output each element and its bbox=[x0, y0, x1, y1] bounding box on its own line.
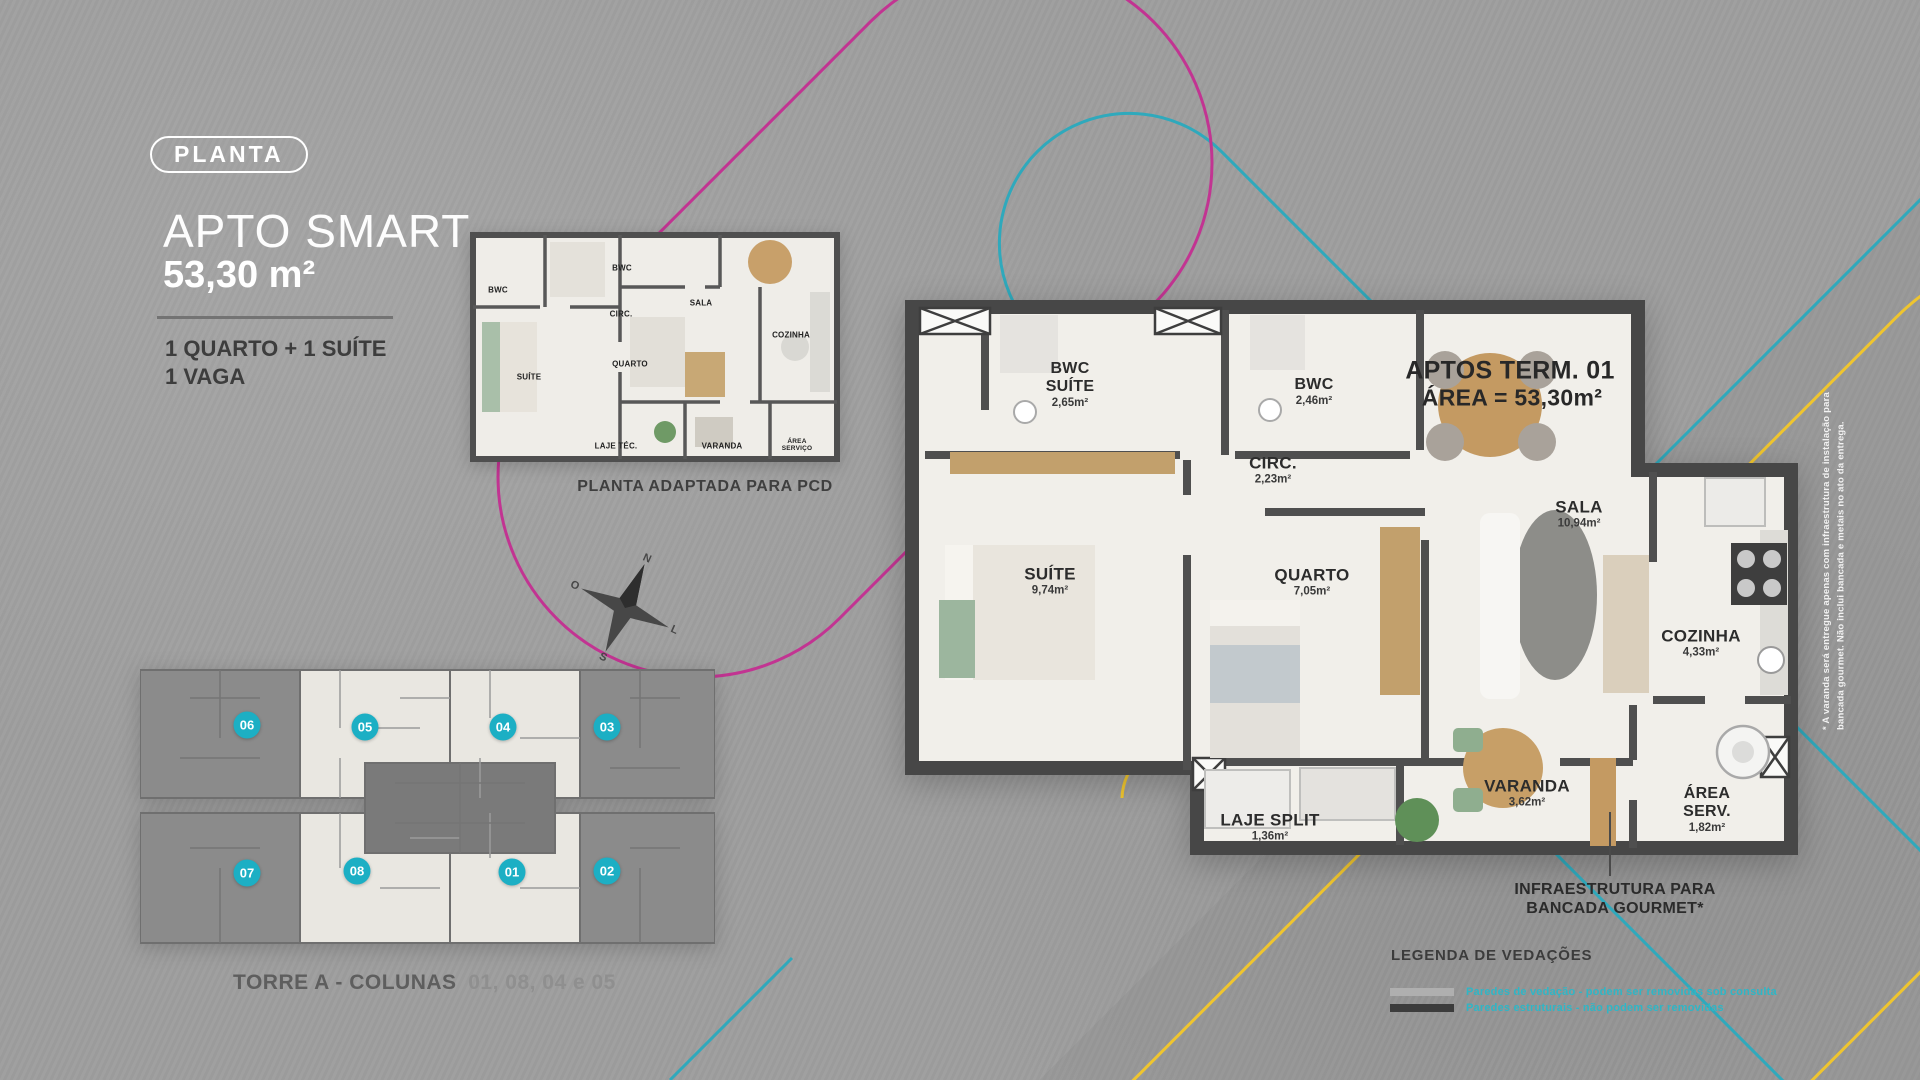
room-area: 7,05m² bbox=[1274, 586, 1349, 599]
unit-badge-02: 02 bbox=[594, 858, 621, 885]
room-area: 1,82m² bbox=[1683, 822, 1731, 835]
pcd-room-varanda: VARANDA bbox=[702, 443, 743, 452]
pcd-room-bwc2: BWC bbox=[612, 265, 632, 274]
tower-caption-numbers: 01, 08, 04 e 05 bbox=[468, 971, 616, 994]
tower-caption: TORRE A - COLUNAS 01, 08, 04 e 05 bbox=[233, 971, 616, 995]
pcd-room-laje-tec: LAJE TÉC. bbox=[595, 443, 638, 452]
room-label-laje-split: LAJE SPLIT1,36m² bbox=[1220, 811, 1319, 844]
unit-badge-04: 04 bbox=[490, 714, 517, 741]
room-name: CIRC. bbox=[1249, 454, 1297, 473]
legend-label: Paredes estruturais - não podem ser remo… bbox=[1466, 1002, 1724, 1014]
apartment-area: 53,30 m² bbox=[163, 256, 315, 294]
tower-caption-bold: TORRE A - COLUNAS bbox=[233, 971, 457, 994]
legend-title: LEGENDA DE VEDAÇÕES bbox=[1391, 947, 1592, 964]
teal-bottom-segment bbox=[670, 958, 792, 1080]
gourmet-callout: INFRAESTRUTURA PARA BANCADA GOURMET* bbox=[1514, 880, 1715, 918]
main-plan-header-line2: ÁREA = 53,30m² bbox=[1342, 385, 1682, 412]
pcd-room-sala: SALA bbox=[690, 300, 713, 309]
room-label-bwc: BWC2,46m² bbox=[1294, 376, 1333, 408]
room-area: 2,23m² bbox=[1249, 474, 1297, 487]
unit-badge-07: 07 bbox=[234, 860, 261, 887]
room-label-area-serv: ÁREA SERV.1,82m² bbox=[1683, 785, 1731, 835]
side-disclaimer-note: * A varanda será entregue apenas com inf… bbox=[1820, 390, 1850, 730]
unit-badge-08: 08 bbox=[344, 858, 371, 885]
room-name: ÁREA SERV. bbox=[1683, 785, 1731, 820]
room-area: 4,33m² bbox=[1661, 647, 1741, 660]
room-area: 10,94m² bbox=[1555, 518, 1602, 531]
main-plan-header-line1: APTOS TERM. 01 bbox=[1340, 357, 1680, 386]
room-name: QUARTO bbox=[1274, 566, 1349, 585]
legend-item-estrutural: Paredes estruturais - não podem ser remo… bbox=[1390, 1002, 1724, 1014]
spec-bedrooms: 1 QUARTO + 1 SUÍTE bbox=[165, 336, 386, 362]
room-label-cozinha: COZINHA4,33m² bbox=[1661, 627, 1741, 660]
unit-badge-01: 01 bbox=[499, 859, 526, 886]
room-name: BWC SUÍTE bbox=[1046, 360, 1095, 395]
tower-keyplan bbox=[140, 658, 715, 953]
room-name: SUÍTE bbox=[1024, 565, 1076, 584]
pcd-room-area-servico: ÁREA SERVIÇO bbox=[782, 438, 813, 452]
room-name: SALA bbox=[1555, 498, 1602, 517]
title-divider bbox=[157, 316, 393, 319]
room-area: 3,62m² bbox=[1484, 797, 1570, 810]
room-area: 1,36m² bbox=[1220, 831, 1319, 844]
room-label-quarto: QUARTO7,05m² bbox=[1274, 566, 1349, 599]
legend-swatch-dark-wall bbox=[1390, 1004, 1454, 1012]
room-name: COZINHA bbox=[1661, 627, 1741, 646]
room-label-bwc-suite: BWC SUÍTE2,65m² bbox=[1046, 360, 1095, 410]
callout-leader-line bbox=[1609, 812, 1611, 876]
pcd-room-cozinha: COZINHA bbox=[772, 332, 810, 341]
room-label-suite: SUÍTE9,74m² bbox=[1024, 565, 1076, 598]
unit-badge-05: 05 bbox=[352, 714, 379, 741]
room-label-varanda: VARANDA3,62m² bbox=[1484, 777, 1570, 810]
legend-swatch-light-wall bbox=[1390, 988, 1454, 996]
pcd-room-quarto: QUARTO bbox=[612, 361, 648, 370]
legend-label: Paredes de vedação - podem ser removidas… bbox=[1466, 986, 1777, 998]
unit-badge-06: 06 bbox=[234, 712, 261, 739]
pcd-floorplan bbox=[470, 232, 840, 462]
room-area: 9,74m² bbox=[1024, 585, 1076, 598]
pcd-caption: PLANTA ADAPTADA PARA PCD bbox=[577, 478, 833, 496]
room-name: LAJE SPLIT bbox=[1220, 811, 1319, 830]
room-name: VARANDA bbox=[1484, 777, 1570, 796]
unit-badge-03: 03 bbox=[594, 714, 621, 741]
planta-badge: PLANTA bbox=[150, 136, 308, 173]
pcd-room-suite: SUÍTE bbox=[517, 374, 542, 383]
room-area: 2,65m² bbox=[1046, 397, 1095, 410]
pcd-room-bwc1: BWC bbox=[488, 287, 508, 296]
pcd-room-circ: CIRC. bbox=[610, 311, 633, 320]
legend-item-vedacao: Paredes de vedação - podem ser removidas… bbox=[1390, 986, 1777, 998]
room-label-sala: SALA10,94m² bbox=[1555, 498, 1602, 531]
room-label-circ: CIRC.2,23m² bbox=[1249, 454, 1297, 487]
spec-parking: 1 VAGA bbox=[165, 364, 245, 390]
room-area: 2,46m² bbox=[1294, 395, 1333, 408]
room-name: BWC bbox=[1294, 376, 1333, 393]
apartment-title: APTO SMART bbox=[163, 208, 470, 254]
